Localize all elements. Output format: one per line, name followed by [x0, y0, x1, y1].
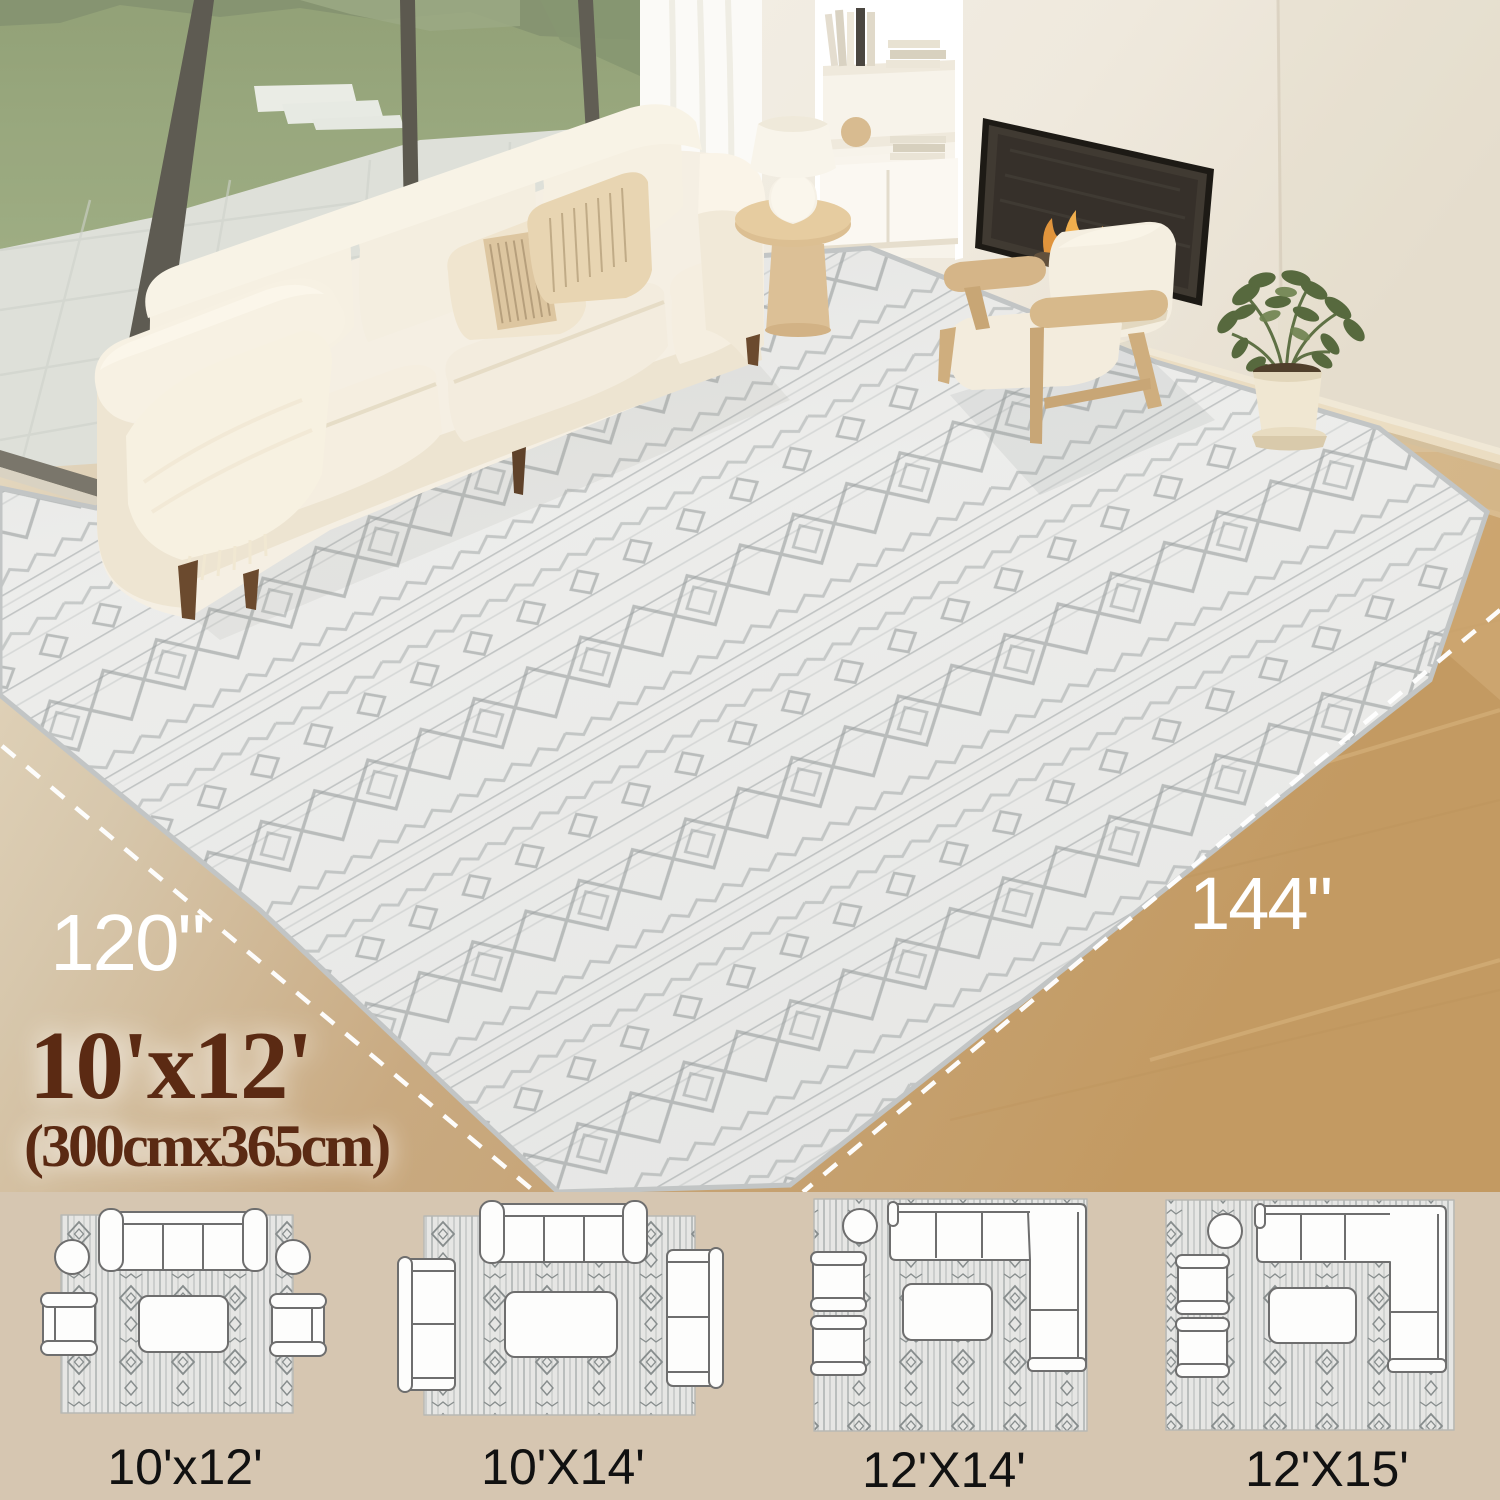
svg-text:10'x12': 10'x12'	[29, 1012, 311, 1119]
svg-text:12'X15': 12'X15'	[1245, 1441, 1409, 1497]
svg-text:10'X14': 10'X14'	[481, 1439, 645, 1495]
svg-text:120": 120"	[50, 898, 204, 987]
svg-text:12'X14': 12'X14'	[862, 1442, 1026, 1498]
svg-text:10'x12': 10'x12'	[107, 1439, 262, 1495]
svg-text:(300cmx365cm): (300cmx365cm)	[24, 1113, 389, 1179]
svg-text:144": 144"	[1189, 862, 1331, 945]
